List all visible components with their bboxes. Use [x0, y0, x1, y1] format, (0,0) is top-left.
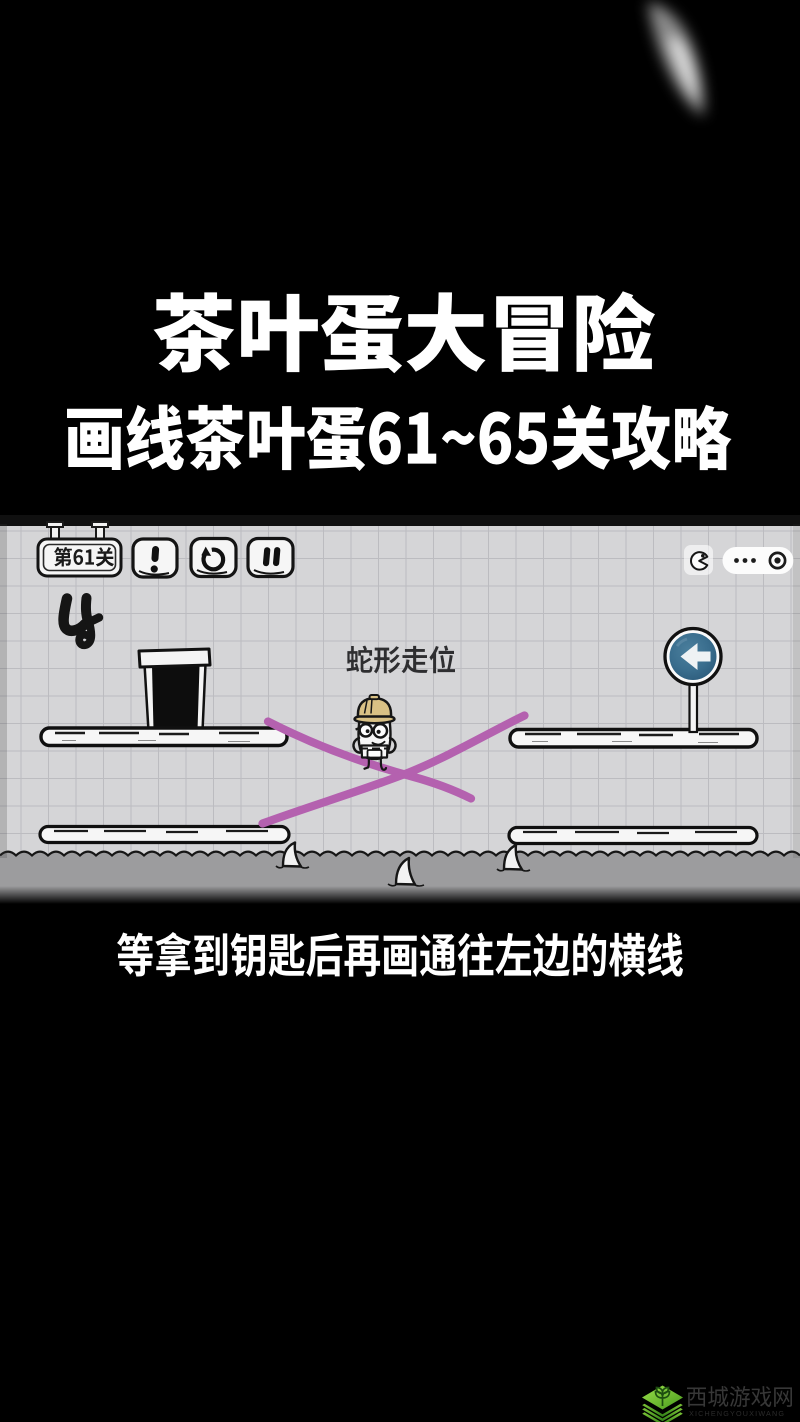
svg-text:XICHENGYOUXIWANG: XICHENGYOUXIWANG — [689, 1409, 785, 1418]
